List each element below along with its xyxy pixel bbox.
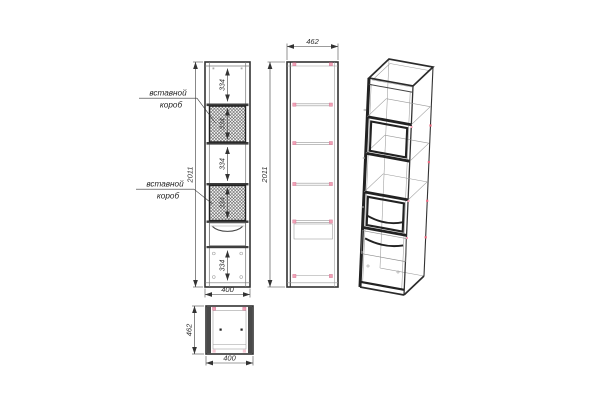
svg-text:2011: 2011 [260, 166, 269, 183]
dim-plan-depth: 462 [185, 306, 205, 354]
svg-text:462: 462 [306, 37, 319, 46]
plan-view: 462 400 [185, 306, 254, 366]
iso-insert-box-top [370, 122, 407, 158]
dim-side-depth: 462 [287, 37, 338, 60]
fitting-markers-side [293, 63, 333, 278]
dim-plan-width: 400 [206, 354, 253, 366]
drawer-front [210, 223, 246, 246]
svg-text:короб: короб [157, 192, 180, 201]
svg-text:400: 400 [221, 285, 234, 294]
svg-text:334: 334 [220, 118, 227, 130]
callout-insert-box-bottom: вставной короб [136, 180, 213, 205]
svg-text:400: 400 [223, 354, 236, 363]
side-view: 462 2011 [260, 37, 338, 287]
svg-text:вставной: вставной [149, 89, 187, 98]
svg-text:короб: короб [160, 101, 183, 110]
drawer-side-outline [294, 224, 333, 239]
iso-insert-box-bottom [367, 197, 404, 232]
dim-front-section-top: 334 [220, 69, 228, 102]
technical-drawing-page: 334 334 334 334 334 2011 [0, 0, 600, 420]
svg-text:462: 462 [185, 323, 194, 336]
svg-text:вставной: вставной [146, 180, 184, 189]
dim-front-overall-height: 2011 [186, 62, 204, 287]
callout-insert-box-top: вставной короб [139, 89, 216, 124]
shelves-side [293, 104, 333, 276]
dim-side-overall-height: 2011 [260, 62, 285, 287]
svg-text:334: 334 [220, 158, 227, 170]
dim-front-section-middle: 334 [220, 147, 228, 181]
isometric-view [360, 59, 433, 295]
svg-text:334: 334 [220, 197, 227, 209]
svg-text:334: 334 [220, 260, 227, 272]
iso-back-panel [363, 59, 433, 290]
plan-fitting-markers [213, 307, 247, 352]
svg-text:334: 334 [220, 79, 227, 91]
svg-text:2011: 2011 [186, 166, 195, 183]
cabinet-drawing: 334 334 334 334 334 2011 [0, 0, 600, 420]
front-view: 334 334 334 334 334 2011 [136, 62, 250, 298]
dim-front-section-bottom: 334 [220, 251, 228, 281]
